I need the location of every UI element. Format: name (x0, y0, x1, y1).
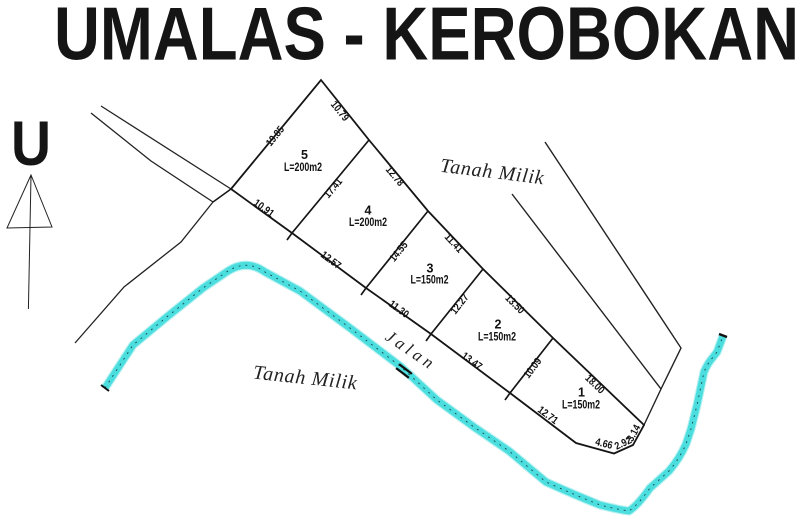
svg-text:L=200m2: L=200m2 (349, 217, 387, 229)
svg-text:2: 2 (495, 318, 502, 332)
svg-text:1: 1 (578, 386, 585, 400)
svg-text:4: 4 (365, 204, 372, 218)
svg-text:L=150m2: L=150m2 (411, 275, 449, 287)
svg-text:L=150m2: L=150m2 (478, 332, 516, 344)
svg-text:L=200m2: L=200m2 (284, 162, 322, 174)
svg-text:U: U (11, 108, 51, 179)
svg-text:3: 3 (427, 262, 434, 276)
svg-text:L=150m2: L=150m2 (562, 400, 600, 412)
svg-text:5: 5 (301, 148, 308, 162)
svg-text:UMALAS - KEROBOKAN: UMALAS - KEROBOKAN (54, 0, 799, 76)
